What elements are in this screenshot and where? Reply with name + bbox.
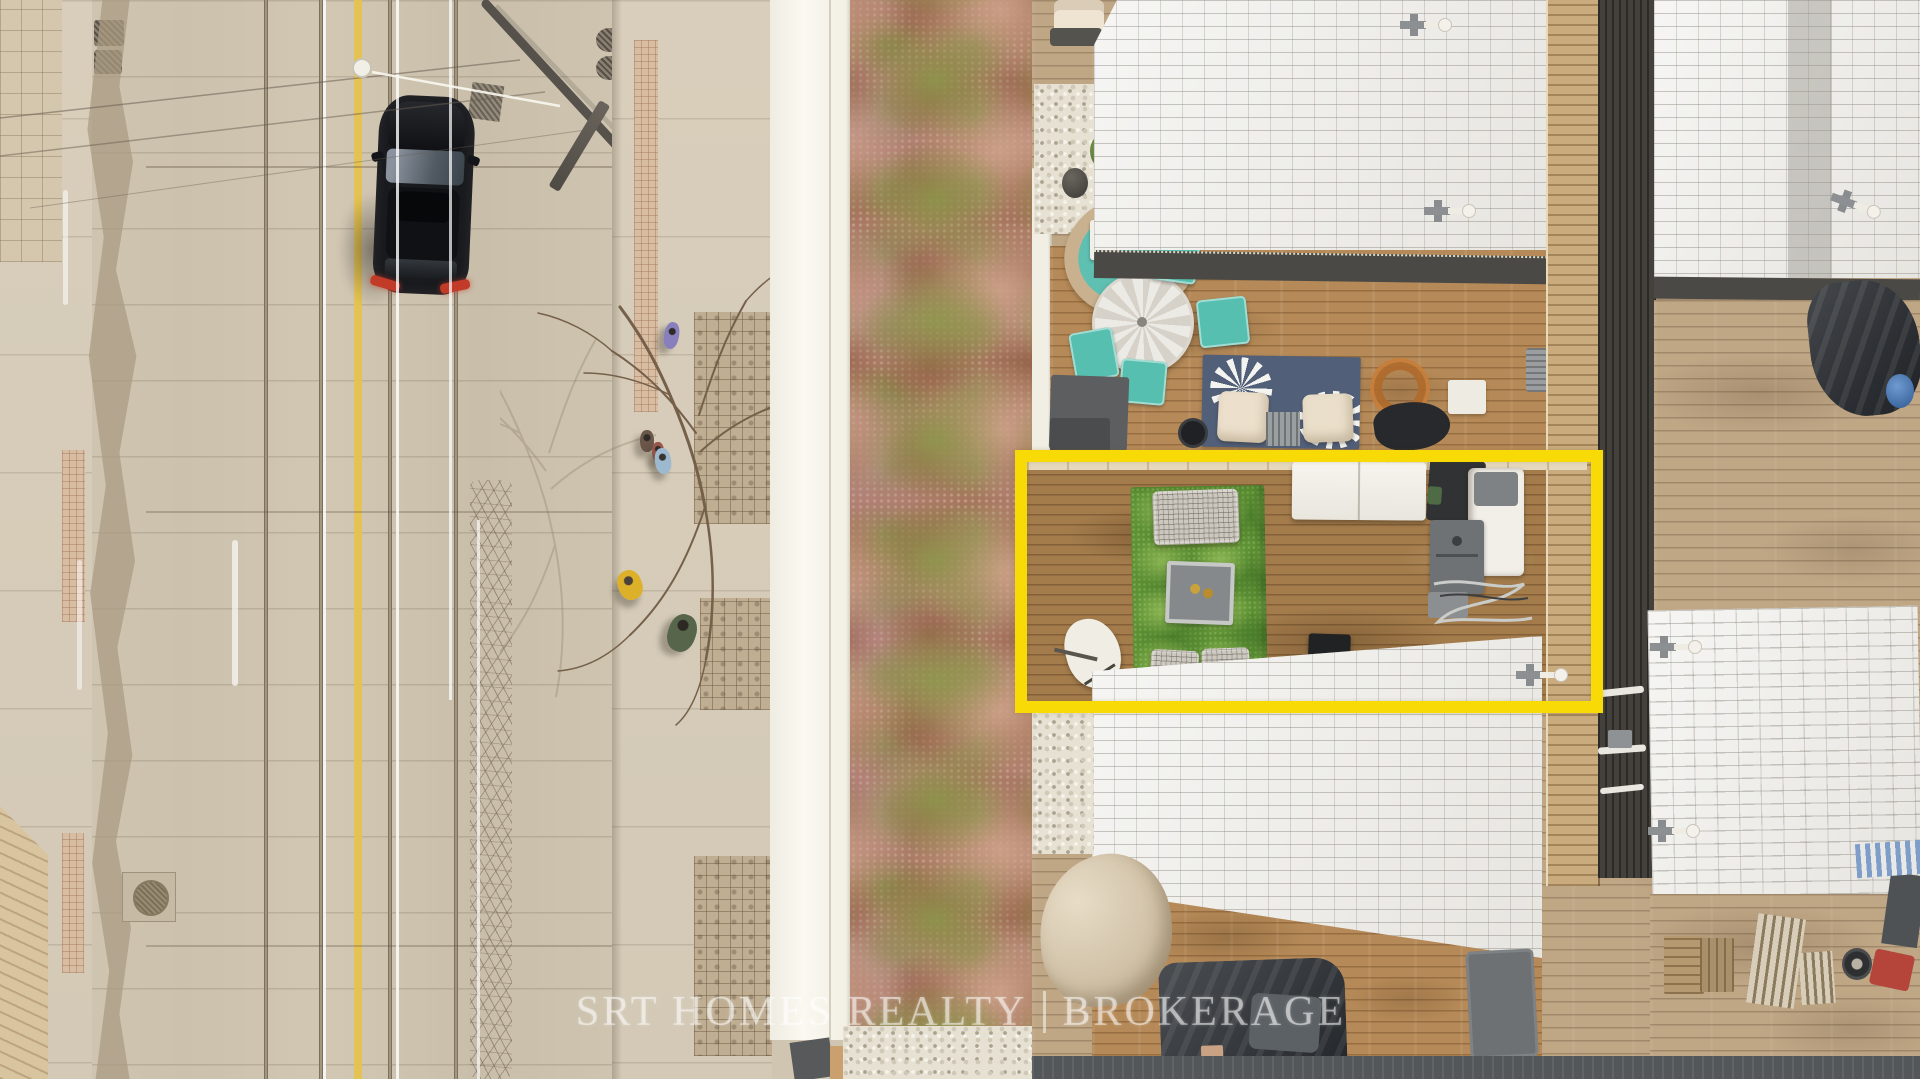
- white-appliance: [1448, 380, 1486, 414]
- roof-anchor-icon: [1648, 820, 1698, 842]
- dark-sofa-edge: [1050, 28, 1102, 46]
- aerial-photo-stage: SRT HOMES REALTY BROKERAGE: [0, 0, 1920, 1079]
- pebble-strip-mid: [1032, 702, 1094, 854]
- white-conduit-pipe: [1600, 784, 1644, 795]
- privacy-fence: [1546, 0, 1600, 886]
- storage-crate: [1700, 938, 1734, 992]
- streetlight-head-icon: [353, 59, 371, 77]
- watermark-text-right: BROKERAGE: [1062, 988, 1346, 1036]
- lower-roof-corner: [789, 1037, 834, 1079]
- tree-shadow: [500, 339, 656, 709]
- gray-covered-box: [1465, 948, 1539, 1059]
- white-parapet-band: [770, 0, 852, 1040]
- gray-slat-tray: [1266, 412, 1300, 446]
- blue-striped-item: [1855, 840, 1920, 879]
- parapet-seam: [829, 0, 831, 1040]
- cream-ottoman: [1217, 391, 1270, 444]
- watermark-separator: [1043, 991, 1046, 1033]
- left-pink-tile-strip-2: [62, 833, 84, 973]
- sedum-green-roof: [850, 0, 1032, 1032]
- white-conduit-pipe: [1598, 686, 1644, 698]
- umbrella-hole: [1137, 317, 1147, 327]
- rubber-walkway: [1032, 1056, 1920, 1079]
- manhole-pad: [122, 872, 176, 922]
- blue-barrel: [1886, 374, 1914, 408]
- slat-board: [1798, 951, 1836, 1005]
- gray-shingle-patch: [1788, 0, 1832, 278]
- roof-anchor-icon: [1400, 14, 1450, 36]
- overhead-wire: [477, 520, 480, 1079]
- gray-mat: [1050, 418, 1110, 452]
- junction-box: [1608, 730, 1632, 748]
- white-shingle-roof-topright: [1654, 0, 1920, 278]
- watermark-text-left: SRT HOMES REALTY: [576, 988, 1028, 1036]
- white-paint-segment: [232, 540, 238, 686]
- highlight-rectangle: [1015, 450, 1603, 713]
- white-shingle-roof-top: [1094, 0, 1554, 250]
- cream-ottoman: [1302, 393, 1354, 443]
- roof-anchor-icon: [1650, 636, 1700, 658]
- speaker-icon: [1178, 418, 1208, 448]
- teal-chair: [1196, 296, 1251, 349]
- spare-tire: [1842, 948, 1872, 980]
- roof-anchor-icon: [1424, 200, 1474, 222]
- storage-crate: [1664, 936, 1704, 994]
- white-paint-segment: [77, 560, 82, 690]
- watermark: SRT HOMES REALTY BROKERAGE: [556, 986, 1366, 1038]
- manhole-cover-icon: [133, 880, 169, 916]
- expansion-joint: [146, 945, 612, 947]
- garden-sphere-fountain: [1062, 168, 1088, 198]
- dark-roof-strip: [1598, 0, 1656, 878]
